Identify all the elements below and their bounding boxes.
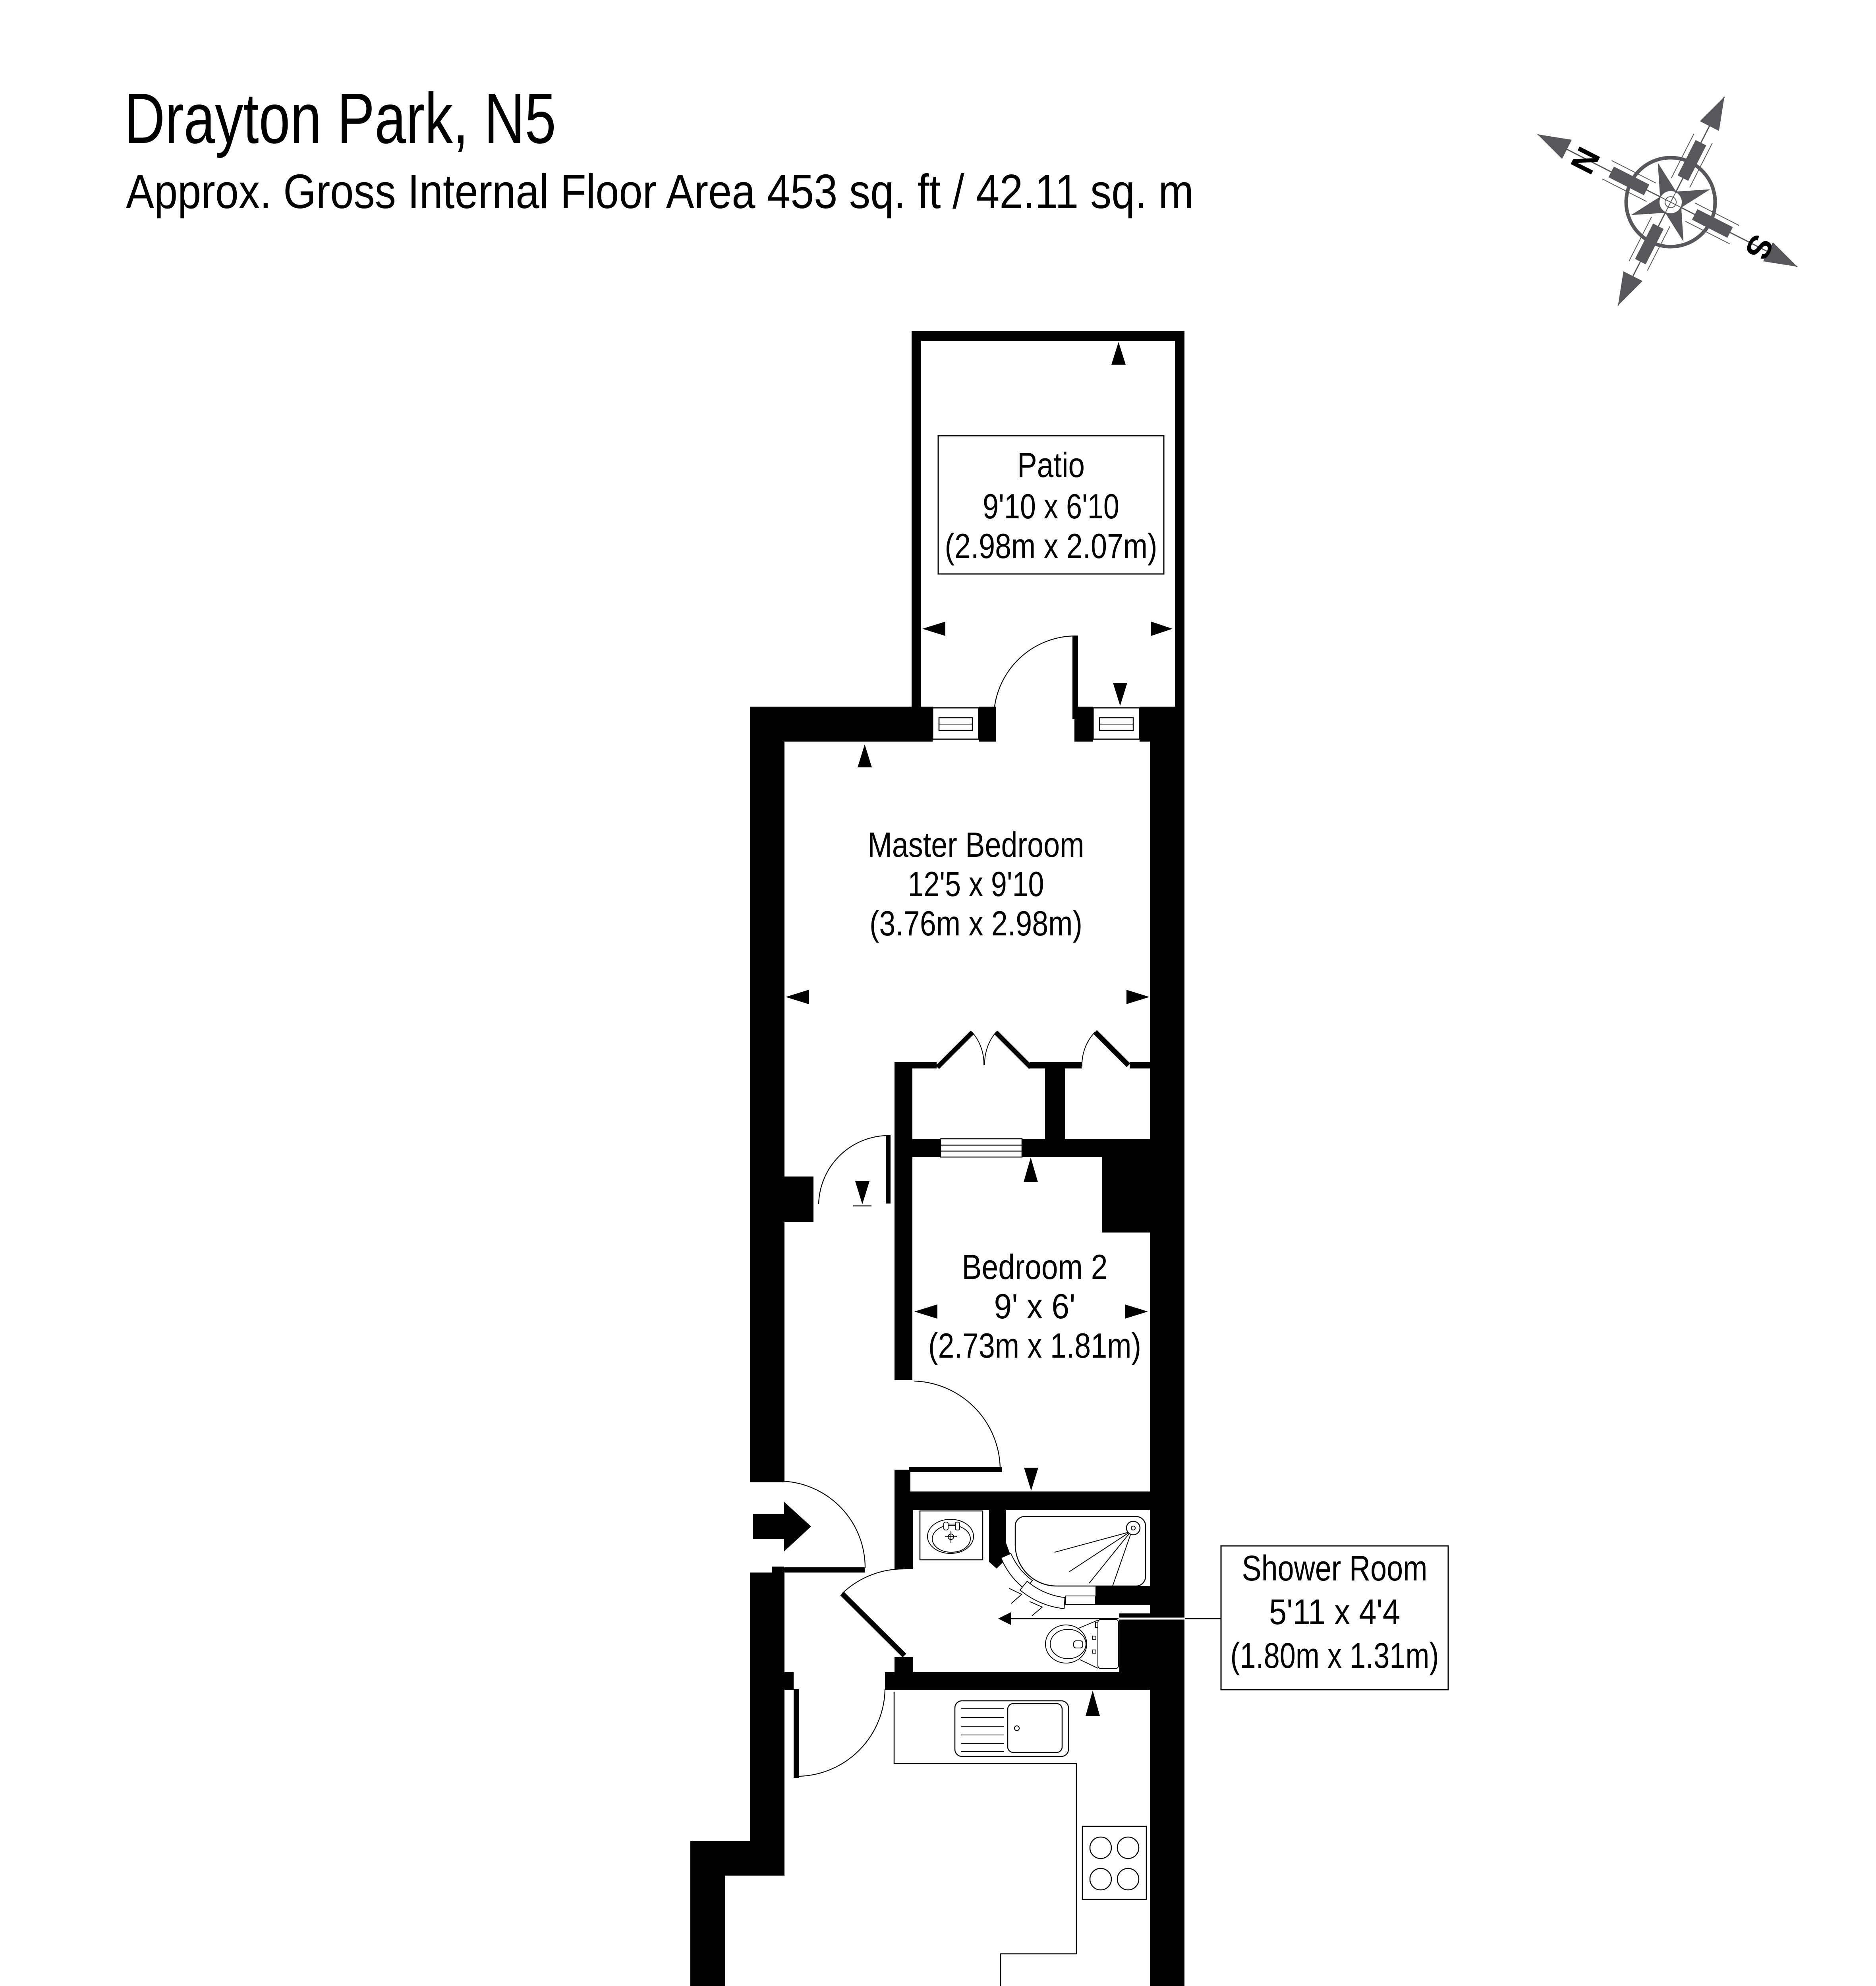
svg-text:5'11 x 4'4: 5'11 x 4'4: [1269, 1592, 1400, 1632]
svg-text:Master Bedroom: Master Bedroom: [868, 825, 1084, 864]
svg-text:Shower Room: Shower Room: [1242, 1549, 1428, 1588]
svg-text:12'5 x 9'10: 12'5 x 9'10: [908, 864, 1044, 904]
svg-text:(3.76m x 2.98m): (3.76m x 2.98m): [869, 904, 1082, 943]
svg-text:Drayton Park, N5: Drayton Park, N5: [124, 79, 556, 158]
svg-text:(1.80m x 1.31m): (1.80m x 1.31m): [1231, 1636, 1439, 1676]
svg-text:(2.73m x 1.81m): (2.73m x 1.81m): [928, 1326, 1141, 1365]
svg-text:(2.98m x 2.07m): (2.98m x 2.07m): [945, 526, 1157, 566]
svg-text:Approx. Gross Internal Floor A: Approx. Gross Internal Floor Area 453 sq…: [126, 164, 1194, 218]
svg-text:9' x 6': 9' x 6': [994, 1287, 1076, 1326]
svg-text:9'10 x 6'10: 9'10 x 6'10: [983, 487, 1119, 526]
svg-text:Patio: Patio: [1017, 445, 1085, 485]
svg-text:Bedroom 2: Bedroom 2: [962, 1247, 1108, 1287]
